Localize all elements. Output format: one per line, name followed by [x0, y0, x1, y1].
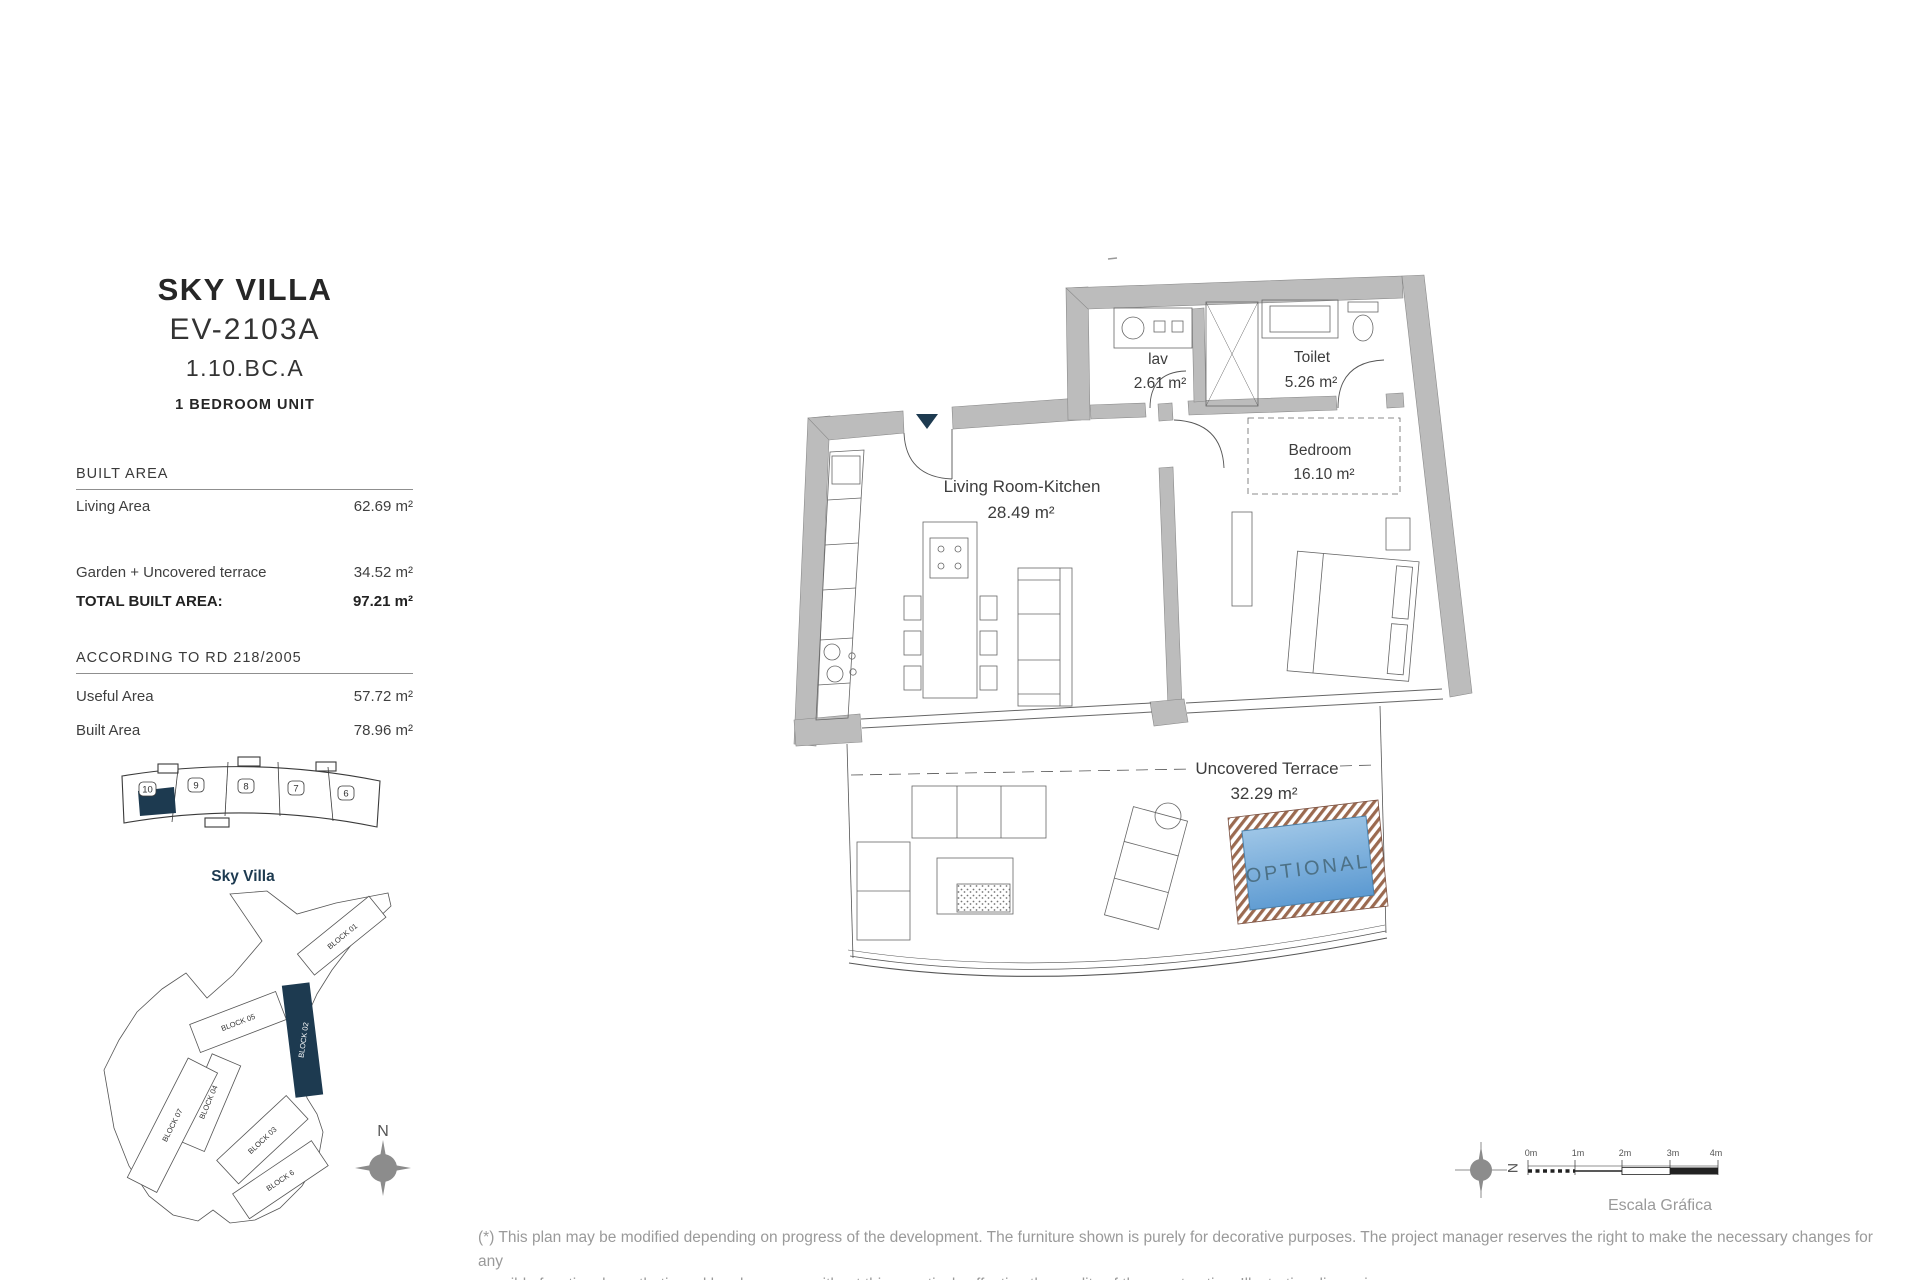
row-label: Built Area: [76, 722, 140, 739]
sky-villa-label: Sky Villa: [211, 868, 275, 885]
chair: [980, 631, 997, 655]
built-area-heading: BUILT AREA: [76, 466, 413, 490]
sun-lounger: [1104, 807, 1187, 930]
sink-bowl: [827, 666, 843, 682]
disclaimer-line: (*) This plan may be modified depending …: [478, 1226, 1878, 1273]
rd-area-table: ACCORDING TO RD 218/2005: [76, 650, 413, 674]
disclaimer-line: possible functional, aesthetic and legal…: [478, 1273, 1878, 1280]
stove: [930, 538, 968, 578]
row-value: 34.52 m²: [354, 564, 413, 581]
sink-bowl: [824, 644, 840, 660]
wc-tank: [1348, 302, 1378, 312]
scale-tick: 1m: [1572, 1148, 1585, 1158]
table-row-total: TOTAL BUILT AREA: 97.21 m²: [76, 593, 413, 610]
row-value: 62.69 m²: [354, 498, 413, 515]
rd-area-heading: ACCORDING TO RD 218/2005: [76, 650, 413, 674]
room-area: 28.49 m²: [987, 503, 1054, 522]
unit-reference: 1.10.BC.A: [100, 355, 390, 382]
unit-number: 9: [193, 781, 198, 792]
room-area: 5.26 m²: [1285, 374, 1338, 391]
apartment-walls: [794, 275, 1472, 746]
graphic-scale: 0m 1m 2m 3m 4m Escala Gráfica: [1525, 1148, 1723, 1214]
scale-tick: 2m: [1619, 1148, 1632, 1158]
floor-plan-sheet: SKY VILLA EV-2103A 1.10.BC.A 1 BEDROOM U…: [0, 0, 1920, 1280]
disclaimer: (*) This plan may be modified depending …: [478, 1226, 1878, 1280]
outdoor-sofa: [912, 786, 1046, 838]
chair: [904, 666, 921, 690]
room-name: Uncovered Terrace: [1195, 759, 1338, 778]
north-label: N: [377, 1123, 389, 1140]
north-label: N: [1505, 1163, 1521, 1173]
room-area: 32.29 m²: [1230, 784, 1297, 803]
unit-number: 6: [343, 789, 348, 800]
table-row: Useful Area 57.72 m²: [76, 688, 413, 705]
row-label: Garden + Uncovered terrace: [76, 564, 267, 581]
chair: [980, 666, 997, 690]
unit-number: 8: [243, 782, 248, 793]
floor-strip-diagram: [122, 757, 380, 827]
chair: [980, 596, 997, 620]
row-label: TOTAL BUILT AREA:: [76, 593, 223, 610]
nightstand: [1386, 518, 1410, 550]
row-label: Useful Area: [76, 688, 154, 705]
unit-number: 7: [293, 784, 298, 795]
table-row: Living Area 62.69 m²: [76, 498, 413, 515]
north-compass-small-icon: N: [1455, 1142, 1521, 1198]
room-name: Living Room-Kitchen: [944, 477, 1101, 496]
scale-tick: 4m: [1710, 1148, 1723, 1158]
laundry-fixtures: [1114, 308, 1192, 348]
chair: [904, 631, 921, 655]
optional-pool: OPTIONAL: [1228, 800, 1388, 924]
room-name: Toilet: [1294, 349, 1331, 366]
row-value: 78.96 m²: [354, 722, 413, 739]
built-area-table: BUILT AREA: [76, 466, 413, 490]
scale-tick-labels: 0m 1m 2m 3m 4m: [1525, 1148, 1723, 1158]
table-row: Built Area 78.96 m²: [76, 722, 413, 739]
page-title: SKY VILLA: [100, 272, 390, 308]
row-label: Living Area: [76, 498, 150, 515]
tv-bench: [1232, 512, 1252, 606]
entrance-arrow: [916, 414, 938, 429]
wc-bowl: [1353, 315, 1373, 341]
fridge: [832, 456, 860, 484]
title-block: SKY VILLA EV-2103A 1.10.BC.A 1 BEDROOM U…: [100, 272, 390, 413]
north-tick: [1108, 258, 1117, 259]
scale-caption: Escala Gráfica: [1608, 1197, 1712, 1214]
apartment-floor-plan: OPTIONAL lav 2.61 m² Toilet 5.26 m² Bedr…: [620, 210, 1500, 1010]
scale-tick: 3m: [1667, 1148, 1680, 1158]
island: [923, 522, 977, 698]
room-name: Bedroom: [1289, 442, 1352, 459]
terrace-furniture: [857, 786, 1188, 940]
row-value: 57.72 m²: [354, 688, 413, 705]
room-area: 2.61 m²: [1134, 375, 1187, 392]
row-value: 97.21 m²: [353, 593, 413, 610]
table-row: Garden + Uncovered terrace 34.52 m²: [76, 564, 413, 581]
scale-tick: 0m: [1525, 1148, 1538, 1158]
room-area: 16.10 m²: [1293, 466, 1354, 483]
sofa: [1018, 568, 1072, 706]
unit-code: EV-2103A: [100, 313, 390, 347]
north-compass-icon: N: [355, 1123, 411, 1196]
unit-number: 10: [142, 785, 153, 796]
rug: [957, 884, 1010, 912]
room-name: lav: [1148, 351, 1168, 368]
bed: [1287, 551, 1419, 681]
site-plan: [104, 891, 391, 1223]
location-diagrams: 10 9 8 7 6 Sky Villa BLOCK 01 BLOCK 02 B…: [90, 748, 420, 1238]
chair: [904, 596, 921, 620]
unit-type: 1 BEDROOM UNIT: [100, 397, 390, 413]
